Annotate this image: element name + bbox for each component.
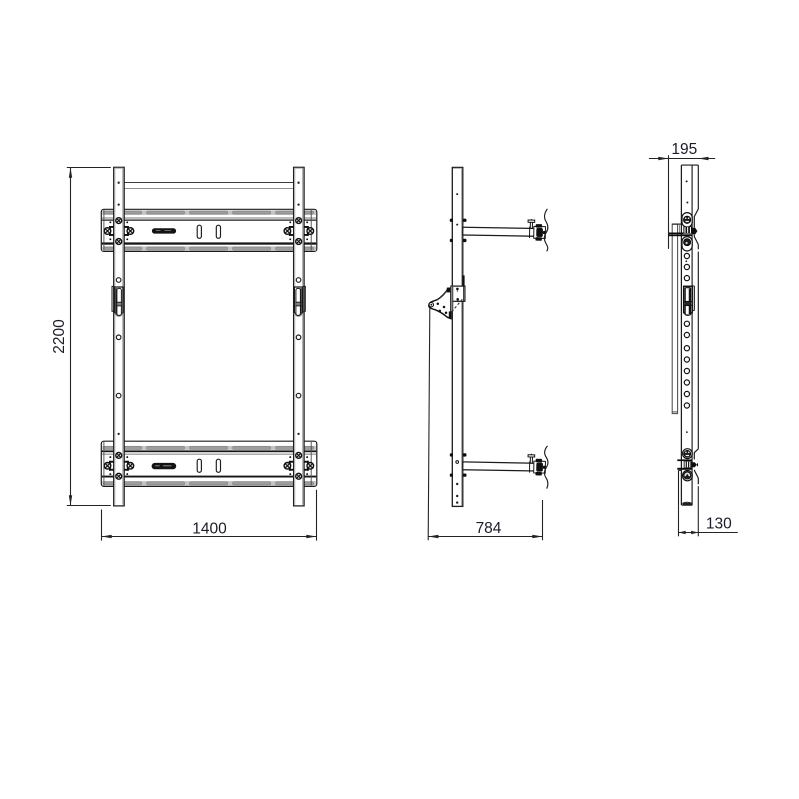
svg-text:195: 195 [671,141,697,158]
svg-text:2200: 2200 [51,319,68,354]
svg-text:130: 130 [706,515,732,532]
svg-text:1400: 1400 [192,520,227,537]
svg-text:784: 784 [476,520,502,537]
